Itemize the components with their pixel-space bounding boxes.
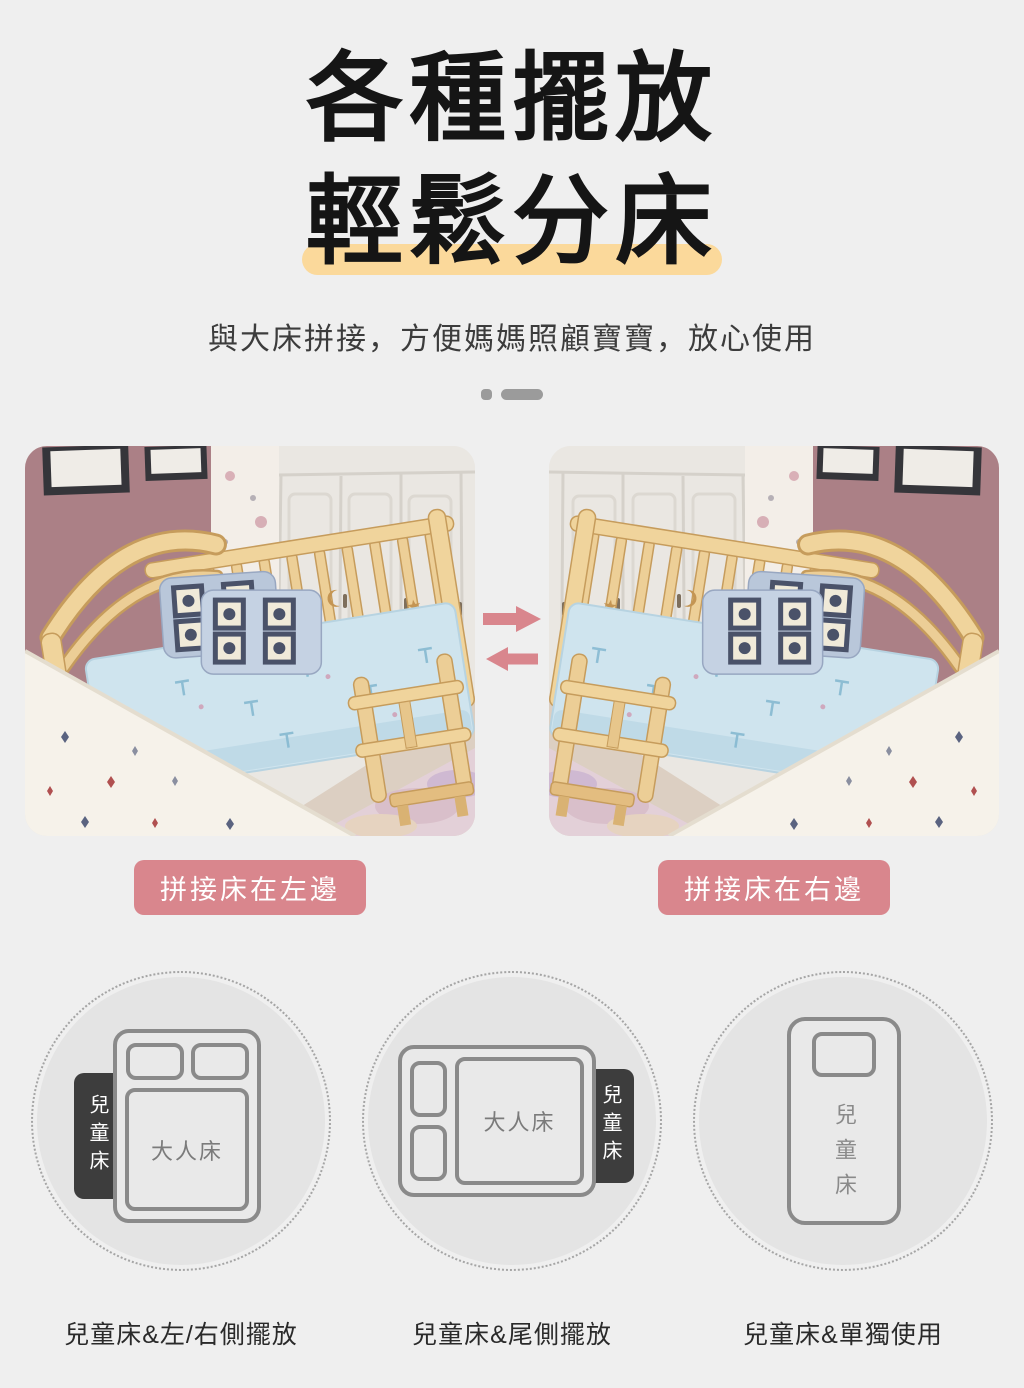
pillow <box>191 1043 249 1080</box>
photo-caption-left-badge: 拼接床在左邊 <box>134 860 366 915</box>
divider-dot-icon <box>481 389 492 400</box>
photo-caption-left-col: 拼接床在左邊 <box>25 860 475 915</box>
arrangement-circle-foot: 兒童床 大人床 <box>362 971 662 1271</box>
adult-mattress: 大人床 <box>125 1088 249 1211</box>
hero-section: 各種擺放 輕鬆分床 與大床拼接，方便媽媽照顧寶寶，放心使用 <box>0 0 1024 400</box>
arrangement-circle-side: 兒童床 大人床 <box>31 971 331 1271</box>
photo-captions: 拼接床在左邊 拼接床在右邊 <box>0 860 1024 915</box>
photo-bed-attached-right <box>549 446 999 836</box>
arrow-right-icon <box>483 606 541 632</box>
arrangement-caption-side: 兒童床&左/右側擺放 <box>64 1315 298 1351</box>
adult-bed-diagram: 大人床 <box>113 1029 261 1223</box>
pillow <box>410 1125 447 1181</box>
bedroom-photo-left <box>25 446 475 836</box>
page-title-line1: 各種擺放 <box>0 50 1024 147</box>
pillow-column <box>410 1057 447 1185</box>
bedroom-photo-right <box>549 446 999 836</box>
arrangement-section: 兒童床 大人床 兒童床&左/右側擺放 兒童床 <box>0 971 1024 1351</box>
pillow-row <box>117 1043 257 1080</box>
swap-arrows <box>483 606 541 671</box>
photo-caption-right-col: 拼接床在右邊 <box>549 860 999 915</box>
pillow <box>410 1061 447 1117</box>
child-bed-label: 兒童床 <box>828 1103 860 1208</box>
page-subtitle: 與大床拼接，方便媽媽照顧寶寶，放心使用 <box>0 314 1024 358</box>
page-title-line2-wrap: 輕鬆分床 <box>306 173 718 270</box>
pillow <box>126 1043 184 1080</box>
child-bed-tag-label: 兒童床 <box>83 1094 112 1178</box>
arrow-left-icon <box>486 647 538 671</box>
child-bed-tag-label: 兒童床 <box>596 1084 625 1168</box>
arrangement-circle-solo: 兒童床 <box>693 971 993 1271</box>
page-title-line2: 輕鬆分床 <box>306 173 718 270</box>
arrangement-caption-foot: 兒童床&尾側擺放 <box>412 1315 612 1351</box>
divider-bar-icon <box>501 389 543 400</box>
arrangement-solo: 兒童床 兒童床&單獨使用 <box>692 971 994 1351</box>
photo-caption-right-badge: 拼接床在右邊 <box>658 860 890 915</box>
arrangement-side: 兒童床 大人床 兒童床&左/右側擺放 <box>30 971 332 1351</box>
arrangement-caption-solo: 兒童床&單獨使用 <box>743 1315 943 1351</box>
photo-bed-attached-left <box>25 446 475 836</box>
photo-gallery <box>0 446 1024 836</box>
child-bed-diagram: 兒童床 <box>787 1017 901 1225</box>
page: 各種擺放 輕鬆分床 與大床拼接，方便媽媽照顧寶寶，放心使用 拼接床在 <box>0 0 1024 1351</box>
adult-bed-diagram: 大人床 <box>398 1045 596 1197</box>
arrangement-foot: 兒童床 大人床 兒童床&尾側擺放 <box>361 971 663 1351</box>
pillow <box>812 1032 876 1077</box>
adult-mattress: 大人床 <box>455 1057 584 1185</box>
section-divider <box>0 389 1024 400</box>
